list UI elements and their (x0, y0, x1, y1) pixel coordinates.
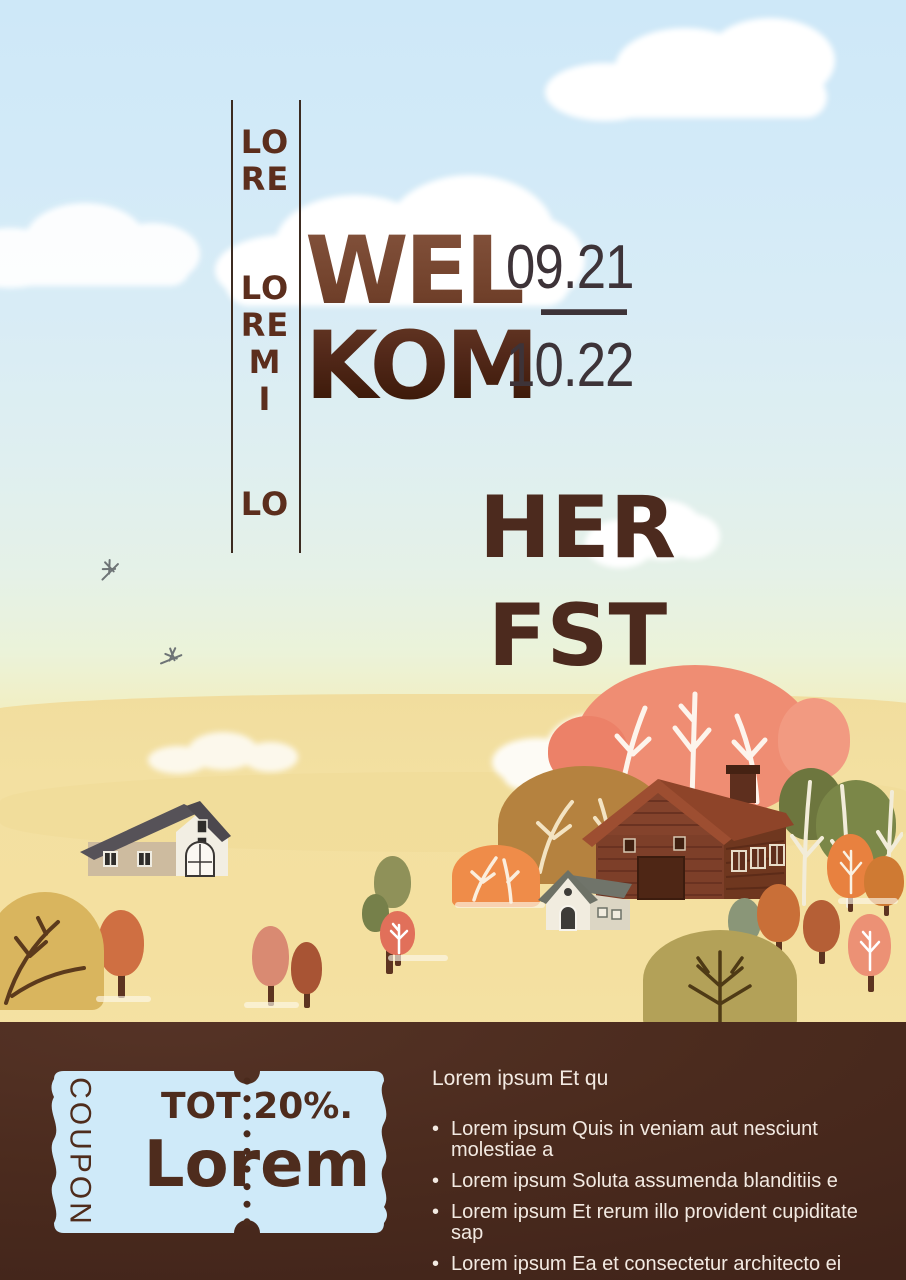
cloud-puff (565, 76, 827, 118)
tree (252, 926, 289, 986)
coupon-stub-label: COUPON (64, 1077, 97, 1227)
coupon-discount: TOT 20%. (142, 1086, 372, 1128)
tree (291, 942, 322, 994)
banner-text: RE (231, 307, 299, 344)
banner-line-right (299, 100, 301, 553)
ground-shadow (244, 1002, 299, 1008)
shed-round-window (564, 888, 572, 896)
vertical-banner-group2: LO RE M I (231, 270, 299, 418)
banner-text: LO (231, 124, 299, 161)
cloud-puff (0, 248, 190, 286)
info-bullet: Lorem ipsum Ea et consectetur architecto… (432, 1254, 882, 1275)
season-line1: HER (455, 474, 700, 582)
banner-text: LO (231, 486, 299, 523)
season-title: HER FST (455, 474, 700, 690)
date-end: 10.22 (506, 330, 634, 401)
poster-title: WEL KOM (305, 224, 535, 414)
barn-vent (624, 839, 635, 852)
info-bullet: Lorem ipsum Quis in veniam aut nesciunt … (432, 1119, 882, 1161)
cloud (0, 198, 200, 290)
vertical-banner-group1: LO RE (231, 124, 299, 198)
title-line1: WEL (305, 224, 535, 319)
bush-branches (456, 848, 536, 906)
banner-text: LO (231, 270, 299, 307)
info-bullet: Lorem ipsum Et rerum illo provident cupi… (432, 1202, 882, 1244)
coupon-main-area: TOT 20%. Lorem (142, 1086, 372, 1200)
banner-text: M (231, 344, 299, 381)
tree (803, 900, 840, 952)
shed-door (560, 906, 576, 930)
info-bullet: Lorem ipsum Soluta assumenda blanditiis … (432, 1171, 882, 1192)
barn-door (638, 857, 684, 899)
cloud (545, 18, 845, 123)
tree-branches (383, 915, 415, 955)
dragonfly-icon (159, 644, 188, 669)
bush-branches (0, 898, 98, 1008)
coupon-brand: Lorem (142, 1130, 372, 1200)
banner-text: I (231, 381, 299, 418)
banner-text: RE (231, 161, 299, 198)
title-line2: KOM (305, 319, 535, 414)
tree (757, 884, 800, 942)
tree (98, 910, 144, 976)
vertical-banner-group3: LO (231, 486, 299, 523)
footer-info: Lorem ipsum Et qu Lorem ipsum Quis in ve… (432, 1066, 882, 1280)
ground-shadow (96, 996, 151, 1002)
autumn-festival-poster: LO RE LO RE M I LO WEL KOM 09.21 — 10.22… (0, 0, 906, 1280)
barn-vent (674, 837, 685, 850)
barn-chimney (730, 769, 756, 803)
tree-branches (852, 920, 888, 972)
shed-window (598, 908, 607, 917)
bush-branches (650, 936, 790, 1028)
ground-shadow (388, 955, 448, 961)
ground-shadow (838, 898, 898, 904)
shed-illustration (538, 868, 634, 934)
shed-window (612, 910, 621, 919)
info-bullet-list: Lorem ipsum Quis in veniam aut nesciunt … (432, 1119, 882, 1275)
ground-shadow (455, 902, 545, 908)
farmhouse-illustration (80, 794, 232, 882)
info-heading: Lorem ipsum Et qu (432, 1066, 882, 1092)
cloud (148, 732, 298, 780)
cloud-puff (243, 742, 298, 772)
